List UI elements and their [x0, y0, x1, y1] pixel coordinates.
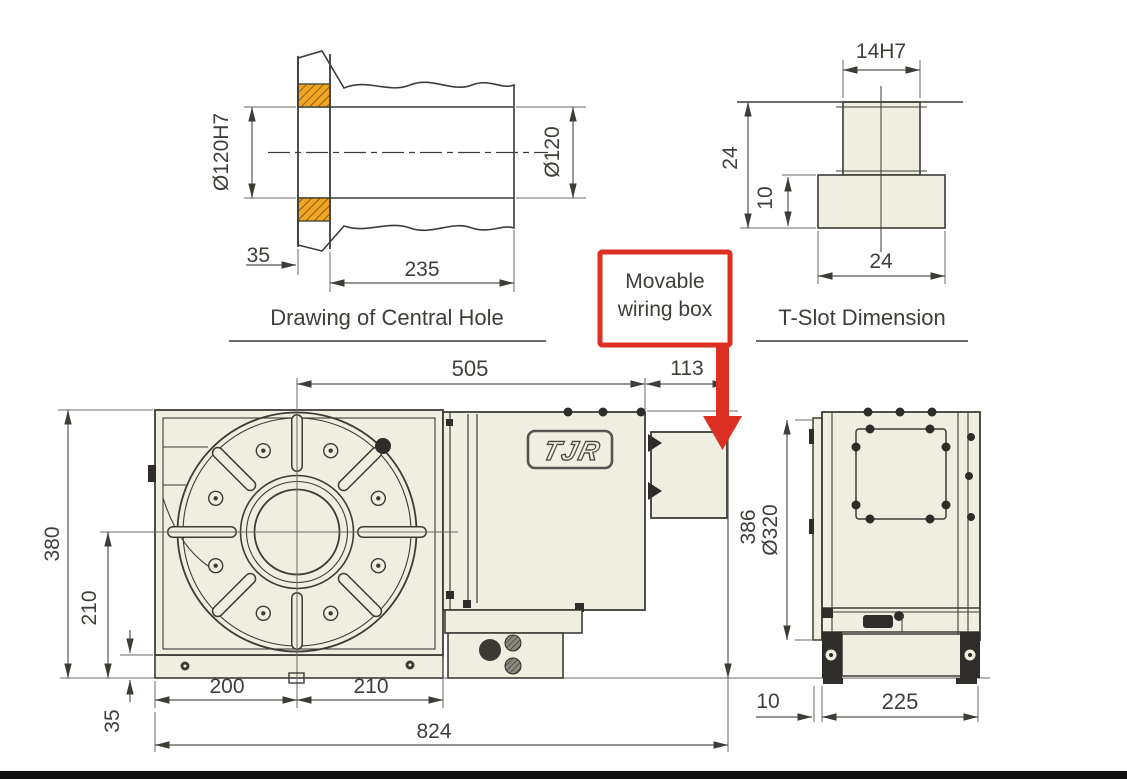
pilot-band-top	[298, 84, 330, 107]
dim-386-label: 386	[737, 509, 760, 544]
motor-housing	[443, 412, 645, 610]
base-plate	[155, 655, 443, 678]
dim-200-label: 200	[209, 675, 244, 698]
dim-210-bottom-label: 210	[353, 675, 388, 698]
tjr-logo: TJR	[540, 435, 605, 466]
callout-line2: wiring box	[617, 298, 713, 321]
dim-210-left-label: 210	[78, 590, 101, 625]
dim-bore-label: Ø120H7	[210, 113, 233, 191]
housing-top-bolt	[564, 408, 573, 417]
pilot-band-bottom	[298, 198, 330, 221]
dim-35-label: 35	[101, 709, 124, 732]
dim-depth-label: 235	[404, 258, 439, 281]
dim-320-label: Ø320	[759, 504, 782, 555]
drawing-svg: Ø120H7 Ø120 35 235 Drawing of Central Ho…	[0, 0, 1127, 779]
dim-10-label: 10	[756, 690, 779, 713]
housing-step	[445, 610, 582, 633]
side-body	[822, 412, 980, 640]
side-connector	[863, 615, 893, 628]
left-tab	[148, 465, 156, 482]
t-slot-view: 14H7 24 10 24 T-Slot Dimension	[719, 40, 968, 341]
wiring-box	[651, 432, 727, 518]
reference-dot	[375, 438, 391, 454]
t-slot-title: T-Slot Dimension	[778, 305, 946, 330]
base-mid	[842, 634, 962, 676]
dim-113-label: 113	[670, 357, 703, 380]
page-bottom-rule	[0, 771, 1127, 779]
dim-380-label: 380	[41, 526, 64, 561]
central-hole-view: Ø120H7 Ø120 35 235 Drawing of Central Ho…	[210, 51, 586, 341]
clamp-knob	[479, 639, 501, 661]
dim-225-label: 225	[882, 689, 919, 714]
dim-tslot-base-height-label: 10	[754, 186, 777, 209]
central-hole-title: Drawing of Central Hole	[270, 305, 504, 330]
technical-drawing-canvas: Ø120H7 Ø120 35 235 Drawing of Central Ho…	[0, 0, 1127, 779]
dim-lip-label: 35	[247, 244, 270, 267]
dim-tslot-base-width-label: 24	[869, 250, 893, 273]
callout-arrow-stem	[716, 344, 729, 418]
housing-top-bolt	[637, 408, 646, 417]
dim-824-label: 824	[416, 720, 451, 743]
clamp-dot	[505, 658, 521, 674]
dim-slot-width-label: 14H7	[856, 40, 906, 63]
clamp-dot	[505, 635, 521, 651]
side-view: Ø320 10 225	[756, 408, 980, 723]
dim-outer-label: Ø120	[541, 126, 564, 177]
callout-line1: Movable	[625, 270, 704, 293]
table-edge-strip	[813, 418, 822, 640]
dim-505-label: 505	[452, 356, 489, 381]
housing-top-bolt	[599, 408, 608, 417]
dim-tslot-height-label: 24	[719, 146, 742, 170]
